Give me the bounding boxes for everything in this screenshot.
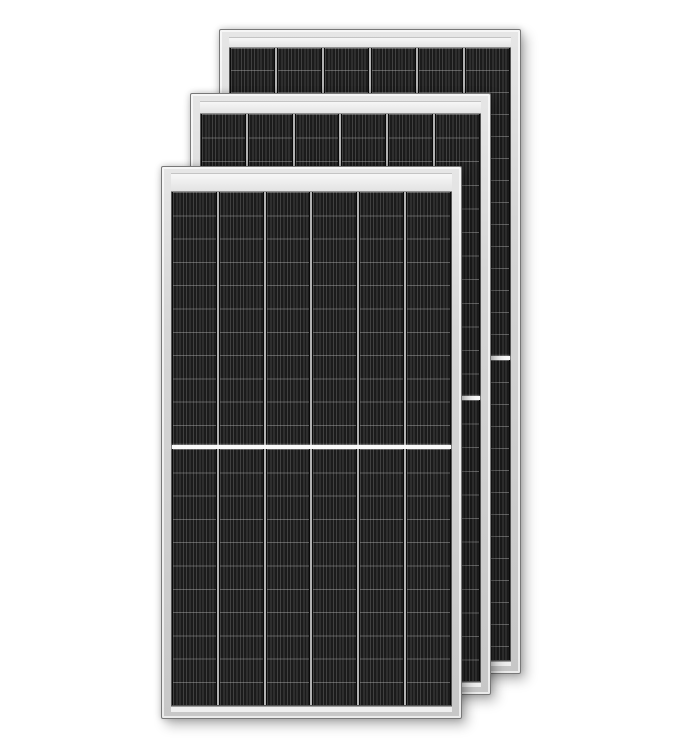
panel-cell-area — [171, 192, 452, 706]
panel-top-margin — [200, 101, 481, 114]
panel-bottom-margin — [171, 706, 452, 712]
cell-column — [359, 192, 404, 445]
cell-half-lower — [172, 449, 451, 705]
cell-column — [172, 449, 217, 705]
panel-top-margin — [171, 173, 452, 192]
cell-column — [406, 192, 451, 445]
cell-column — [266, 192, 311, 445]
cell-column — [406, 449, 451, 705]
solar-panel-front — [161, 166, 462, 719]
cell-half-upper — [172, 192, 451, 445]
solar-panel-product-image — [0, 0, 684, 748]
cell-column — [219, 192, 264, 445]
cell-column — [172, 192, 217, 445]
cell-column — [266, 449, 311, 705]
cell-column — [312, 449, 357, 705]
cell-column — [312, 192, 357, 445]
cell-column — [219, 449, 264, 705]
panel-top-margin — [229, 37, 511, 48]
cell-column — [359, 449, 404, 705]
